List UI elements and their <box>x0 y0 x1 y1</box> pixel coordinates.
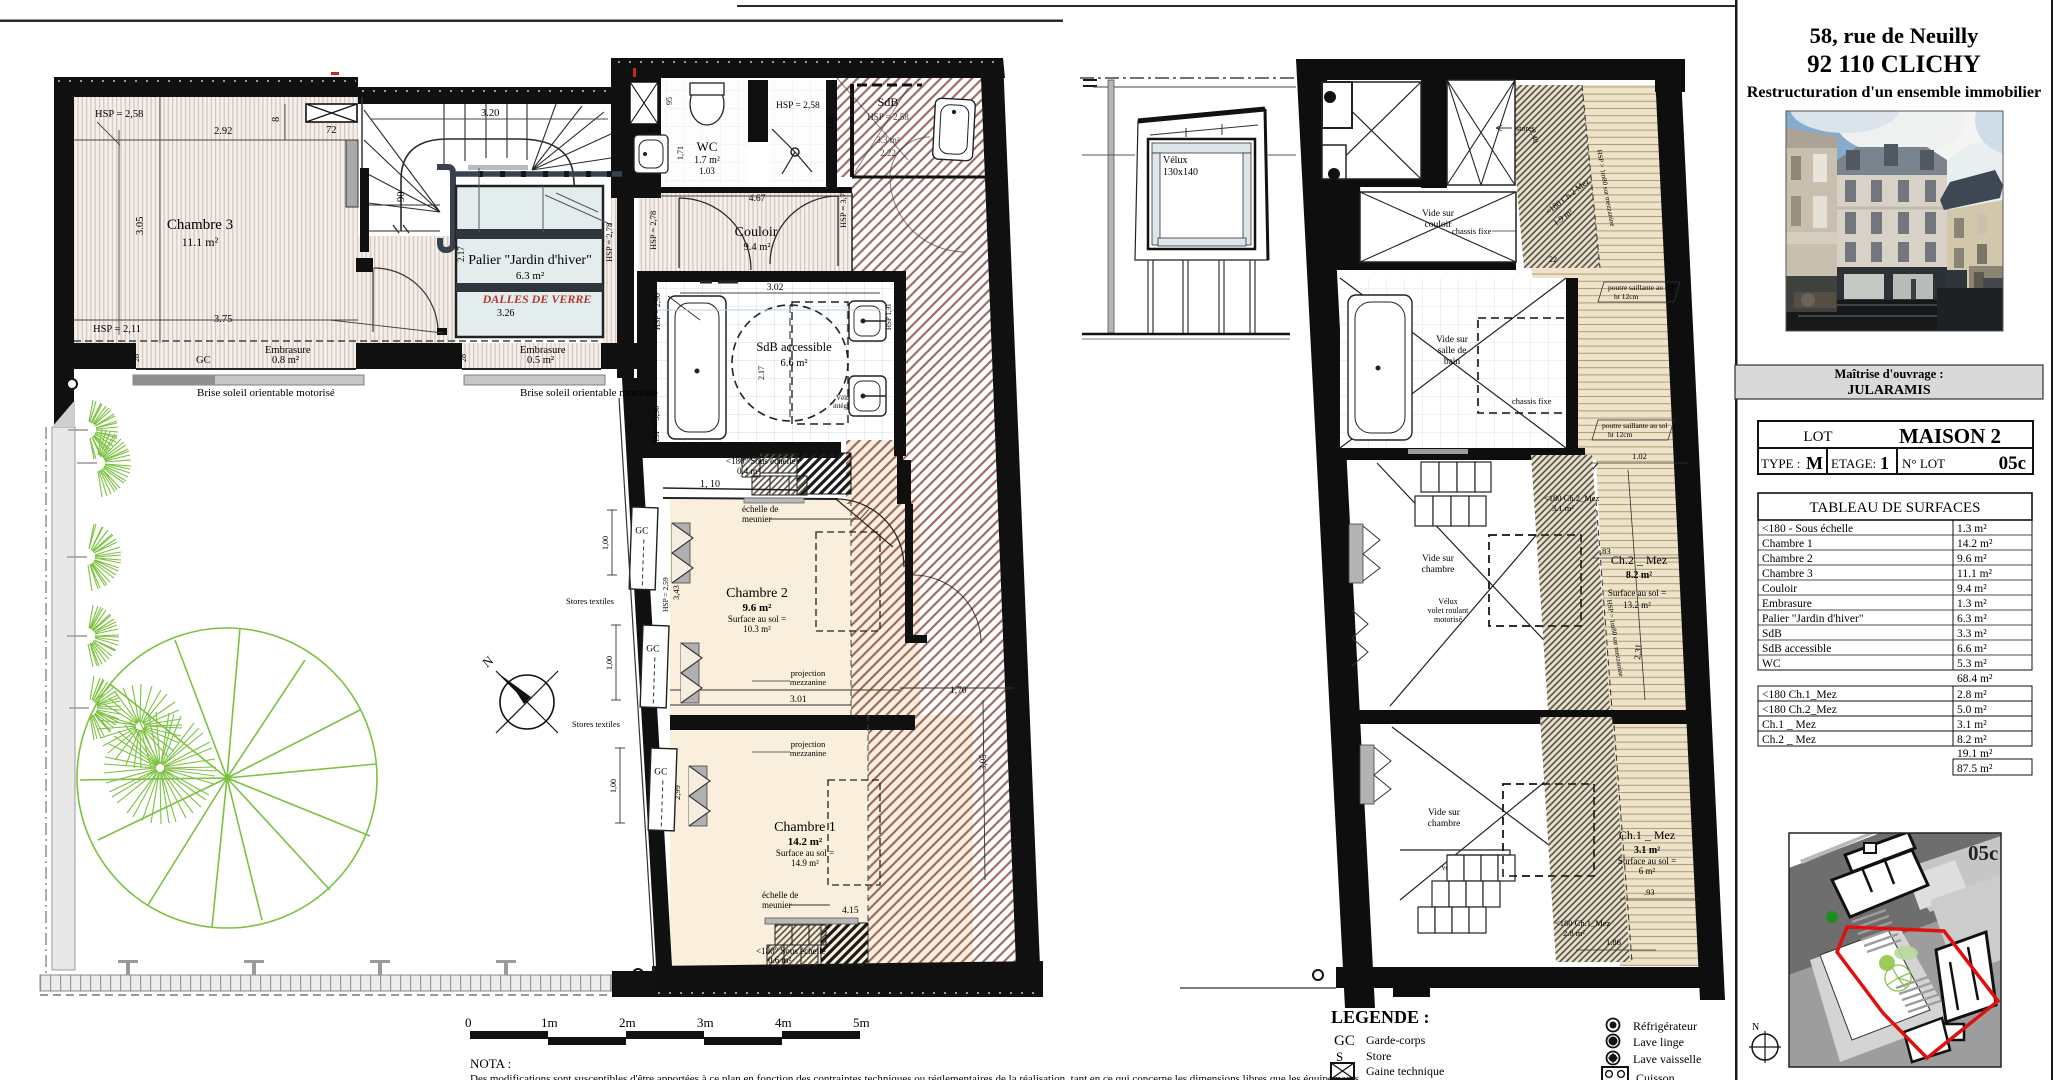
svg-text:TABLEAU DE SURFACES: TABLEAU DE SURFACES <box>1809 500 1980 516</box>
svg-text:Chambre 2: Chambre 2 <box>726 586 788 601</box>
svg-text:Ch.2 _ Mez: Ch.2 _ Mez <box>1611 553 1667 567</box>
svg-text:2.17: 2.17 <box>757 366 766 380</box>
svg-text:3.3 m²: 3.3 m² <box>1957 628 1987 640</box>
svg-text:DALLES DE VERRE: DALLES DE VERRE <box>482 292 592 306</box>
svg-text:S: S <box>1336 1049 1343 1064</box>
svg-text:1,00: 1,00 <box>605 656 614 670</box>
svg-text:2.92: 2.92 <box>214 126 232 137</box>
svg-text:M: M <box>1806 453 1823 473</box>
svg-text:3,43: 3,43 <box>671 585 681 600</box>
svg-text:8.2 m²: 8.2 m² <box>1626 570 1652 581</box>
svg-text:GC: GC <box>635 526 649 536</box>
svg-text:meunier: meunier <box>742 514 772 524</box>
svg-text:chambre: chambre <box>1422 565 1455 575</box>
svg-text:11.1 m²: 11.1 m² <box>182 235 219 249</box>
svg-text:3.26: 3.26 <box>497 308 515 319</box>
svg-text:poutre saillante au sol: poutre saillante au sol <box>1608 283 1674 292</box>
svg-text:échelle de: échelle de <box>742 504 778 514</box>
svg-text:LOT: LOT <box>1803 429 1832 445</box>
svg-text:Palier "Jardin d'hiver": Palier "Jardin d'hiver" <box>468 253 592 268</box>
svg-text:Surface au sol =: Surface au sol = <box>728 614 786 624</box>
svg-text:10.3 m²: 10.3 m² <box>743 624 771 634</box>
svg-text:2.17: 2.17 <box>456 246 466 262</box>
svg-text:Embrasure: Embrasure <box>1762 598 1812 610</box>
svg-text:Vélux: Vélux <box>1163 155 1187 166</box>
svg-text:22: 22 <box>1549 255 1557 264</box>
svg-text:chassis fixe: chassis fixe <box>1452 226 1492 236</box>
svg-text:ht 12cm: ht 12cm <box>1608 430 1633 439</box>
svg-text:28: 28 <box>459 354 468 362</box>
svg-text:72: 72 <box>326 125 337 136</box>
svg-text:87.5 m²: 87.5 m² <box>1957 763 1993 775</box>
svg-text:05c: 05c <box>1999 453 2026 474</box>
svg-text:<180 Ch.1_Mez: <180 Ch.1_Mez <box>1762 689 1837 701</box>
svg-text:.83: .83 <box>1600 546 1611 556</box>
svg-text:<180 Ch.2_Mez: <180 Ch.2_Mez <box>1544 493 1600 503</box>
svg-text:0.5 m²: 0.5 m² <box>527 355 554 366</box>
svg-text:<180 Ch.2_Mez: <180 Ch.2_Mez <box>1762 704 1837 716</box>
svg-text:HSP = 2,58: HSP = 2,58 <box>776 101 820 111</box>
svg-text:HSP = 3,78: HSP = 3,78 <box>838 189 848 228</box>
svg-text:ht 12cm: ht 12cm <box>1614 292 1639 301</box>
svg-text:N: N <box>1752 1022 1759 1033</box>
svg-text:19.1 m²: 19.1 m² <box>1957 748 1993 760</box>
svg-text:.93: .93 <box>1644 887 1655 897</box>
svg-text:<180 - Sous échelle: <180 - Sous échelle <box>1762 523 1853 535</box>
svg-text:Vide sur: Vide sur <box>1422 209 1455 219</box>
svg-text:3.20: 3.20 <box>481 108 499 119</box>
svg-text:3m: 3m <box>697 1015 714 1030</box>
svg-text:1.86: 1.86 <box>1606 937 1621 947</box>
svg-text:0.6 m²: 0.6 m² <box>768 955 792 965</box>
svg-text:Chambre 2: Chambre 2 <box>1762 553 1813 565</box>
svg-text:2m: 2m <box>619 1015 636 1030</box>
svg-text:mezzanine: mezzanine <box>790 677 827 687</box>
svg-text:Vide sur: Vide sur <box>1428 808 1461 818</box>
svg-text:GC: GC <box>646 644 660 654</box>
svg-text:Chambre 3: Chambre 3 <box>167 217 233 233</box>
svg-text:mezzanine: mezzanine <box>790 748 827 758</box>
svg-text:Surface au sol =: Surface au sol = <box>1618 856 1676 866</box>
svg-text:11.1 m²: 11.1 m² <box>1957 568 1993 580</box>
svg-text:Ch.1 _ Mez: Ch.1 _ Mez <box>1619 828 1675 842</box>
svg-text:58, rue de Neuilly: 58, rue de Neuilly <box>1810 23 1979 48</box>
svg-text:1,19: 1,19 <box>826 116 835 130</box>
svg-text:Stores textiles: Stores textiles <box>566 596 614 606</box>
svg-text:130x140: 130x140 <box>1163 167 1198 178</box>
svg-text:Store: Store <box>1366 1049 1391 1063</box>
svg-text:Cuisson: Cuisson <box>1636 1071 1675 1080</box>
svg-text:1,70: 1,70 <box>950 686 967 696</box>
svg-text:NOTA :: NOTA : <box>470 1056 511 1071</box>
svg-text:chambre: chambre <box>1428 819 1461 829</box>
svg-text:Brise soleil orientable motori: Brise soleil orientable motorisé <box>520 387 658 399</box>
svg-text:0: 0 <box>465 1015 472 1030</box>
svg-text:HSP = 2,78: HSP = 2,78 <box>604 223 614 262</box>
svg-text:3.05: 3.05 <box>135 217 146 235</box>
svg-text:1.3 m²: 1.3 m² <box>1957 598 1987 610</box>
svg-text:GC: GC <box>654 767 668 777</box>
svg-text:3.02: 3.02 <box>767 283 784 293</box>
svg-text:GC: GC <box>196 355 211 366</box>
svg-text:Brise soleil orientable motori: Brise soleil orientable motorisé <box>197 387 335 399</box>
svg-text:6.3 m²: 6.3 m² <box>516 270 545 282</box>
svg-text:9.6 m²: 9.6 m² <box>743 602 773 614</box>
svg-text:2.22: 2.22 <box>880 148 896 158</box>
svg-text:JULARAMIS: JULARAMIS <box>1847 383 1930 398</box>
svg-text:Chambre 3: Chambre 3 <box>1762 568 1813 580</box>
svg-text:HSP 1,91: HSP 1,91 <box>885 303 893 330</box>
svg-text:1.7 m²: 1.7 m² <box>694 155 720 166</box>
svg-text:échelle de: échelle de <box>762 890 798 900</box>
svg-text:5.3 m²: 5.3 m² <box>1957 658 1987 670</box>
svg-text:TYPE :: TYPE : <box>1761 456 1800 471</box>
svg-text:Des modifications sont suscept: Des modifications sont susceptibles d'êt… <box>470 1073 1359 1080</box>
svg-text:SdB: SdB <box>878 95 899 109</box>
svg-text:1,71: 1,71 <box>676 146 685 160</box>
svg-text:Vide sur: Vide sur <box>1422 554 1455 564</box>
svg-text:14.2 m²: 14.2 m² <box>788 836 823 848</box>
svg-text:Ch.2 _ Mez: Ch.2 _ Mez <box>1762 734 1816 746</box>
svg-text:Chambre 1: Chambre 1 <box>1762 538 1813 550</box>
svg-text:14.9 m²: 14.9 m² <box>791 858 819 868</box>
svg-text:Lave vaisselle: Lave vaisselle <box>1633 1052 1701 1066</box>
svg-text:2.8 m²: 2.8 m² <box>1563 928 1585 938</box>
svg-text:14.2 m²: 14.2 m² <box>1957 538 1993 550</box>
svg-text:SdB accessible: SdB accessible <box>756 340 832 354</box>
svg-text:1.3 m²: 1.3 m² <box>1957 523 1987 535</box>
svg-text:volet roulant: volet roulant <box>1428 606 1469 615</box>
svg-text:6.6 m²: 6.6 m² <box>1957 643 1987 655</box>
svg-text:3.01: 3.01 <box>790 695 807 705</box>
svg-text:1.03: 1.03 <box>699 166 715 176</box>
svg-text:Lave linge: Lave linge <box>1633 1035 1684 1049</box>
svg-text:3.1 m²: 3.1 m² <box>1957 719 1987 731</box>
svg-text:1,00: 1,00 <box>601 536 610 550</box>
svg-text:HSP = 2,90: HSP = 2,90 <box>653 293 662 330</box>
svg-text:3.75: 3.75 <box>214 314 232 325</box>
svg-text:WC: WC <box>697 139 718 154</box>
svg-text:Maîtrise d'ouvrage :: Maîtrise d'ouvrage : <box>1834 367 1943 381</box>
svg-text:Réfrigérateur: Réfrigérateur <box>1633 1019 1697 1033</box>
svg-text:9.6 m²: 9.6 m² <box>1957 553 1987 565</box>
svg-text:Palier "Jardin d'hiver": Palier "Jardin d'hiver" <box>1762 613 1864 625</box>
svg-text:3.1 m²: 3.1 m² <box>1552 503 1574 513</box>
svg-text:28: 28 <box>132 354 141 362</box>
svg-text:bain: bain <box>1444 357 1461 367</box>
svg-text:36: 36 <box>646 126 654 134</box>
svg-text:Vélux: Vélux <box>1438 597 1458 606</box>
svg-text:salle de: salle de <box>1438 346 1467 356</box>
svg-text:68.4 m²: 68.4 m² <box>1957 673 1993 685</box>
svg-text:N° LOT: N° LOT <box>1902 456 1945 471</box>
svg-text:Restructuration d'un ensemble: Restructuration d'un ensemble immobilier <box>1747 83 2042 101</box>
svg-text:9.4 m²: 9.4 m² <box>1957 583 1987 595</box>
svg-text:Ch.1 _ Mez: Ch.1 _ Mez <box>1762 719 1816 731</box>
svg-text:8.2 m²: 8.2 m² <box>1957 734 1987 746</box>
svg-text:Vide sur: Vide sur <box>1436 335 1469 345</box>
svg-text:05c: 05c <box>1968 841 1998 865</box>
svg-text:GC: GC <box>1334 1033 1355 1049</box>
svg-text:HSP = 2,11: HSP = 2,11 <box>93 324 141 335</box>
svg-text:1,00: 1,00 <box>609 779 618 793</box>
svg-text:0.8 m²: 0.8 m² <box>272 355 299 366</box>
svg-text:1.02: 1.02 <box>1632 451 1647 461</box>
svg-text:Surface au sol =: Surface au sol = <box>776 848 834 858</box>
svg-text:4.15: 4.15 <box>842 906 859 916</box>
svg-text:MAISON 2: MAISON 2 <box>1899 424 2001 448</box>
svg-text:<180 Ch.1_Mez: <180 Ch.1_Mez <box>1555 918 1611 928</box>
svg-text:13.2 m²: 13.2 m² <box>1623 600 1651 610</box>
svg-text:6.6 m²: 6.6 m² <box>780 358 807 369</box>
svg-text:HSP = 2,59: HSP = 2,59 <box>661 577 670 612</box>
svg-text:3.1 m²: 3.1 m² <box>1634 845 1660 856</box>
svg-text:0.4 m²: 0.4 m² <box>737 466 761 476</box>
svg-text:WC: WC <box>1762 658 1781 670</box>
svg-text:LEGENDE :: LEGENDE : <box>1331 1007 1430 1027</box>
svg-text:Couloir: Couloir <box>1762 583 1797 595</box>
svg-text:8: 8 <box>271 117 282 122</box>
svg-text:1: 1 <box>1880 453 1889 473</box>
svg-text:Gaine technique: Gaine technique <box>1366 1064 1444 1078</box>
svg-text:1m: 1m <box>541 1015 558 1030</box>
svg-text:5m: 5m <box>853 1015 870 1030</box>
svg-text:4m: 4m <box>775 1015 792 1030</box>
svg-text:3,05: 3,05 <box>978 754 988 770</box>
svg-text:2.8 m²: 2.8 m² <box>1957 689 1987 701</box>
svg-text:motorisé: motorisé <box>1434 615 1462 624</box>
svg-text:Chambre 1: Chambre 1 <box>774 820 836 835</box>
svg-text:SdB: SdB <box>1762 628 1782 640</box>
svg-text:Garde-corps: Garde-corps <box>1366 1033 1426 1047</box>
svg-text:SdB accessible: SdB accessible <box>1762 643 1831 655</box>
svg-text:HSP = 2,78: HSP = 2,78 <box>648 211 658 250</box>
svg-text:poutre saillante au sol: poutre saillante au sol <box>1602 421 1668 430</box>
svg-text:Stores textiles: Stores textiles <box>572 719 620 729</box>
svg-text:92 110 CLICHY: 92 110 CLICHY <box>1807 51 1981 78</box>
svg-text:5.0 m²: 5.0 m² <box>1957 704 1987 716</box>
svg-text:couloir: couloir <box>1425 220 1453 230</box>
svg-text:meunier: meunier <box>762 900 792 910</box>
svg-text:90: 90 <box>396 192 407 203</box>
svg-text:chassis fixe: chassis fixe <box>1512 396 1552 406</box>
svg-text:95: 95 <box>665 97 674 105</box>
svg-text:HSP = 3,90: HSP = 3,90 <box>651 406 661 445</box>
svg-text:6 m²: 6 m² <box>1639 866 1656 876</box>
svg-text:ETAGE:: ETAGE: <box>1831 456 1876 471</box>
svg-text:4.67: 4.67 <box>749 194 766 204</box>
svg-text:HSP = 2,58: HSP = 2,58 <box>95 109 143 120</box>
svg-text:6.3 m²: 6.3 m² <box>1957 613 1987 625</box>
svg-text:<180° Sous échelle: <180° Sous échelle <box>726 456 796 466</box>
